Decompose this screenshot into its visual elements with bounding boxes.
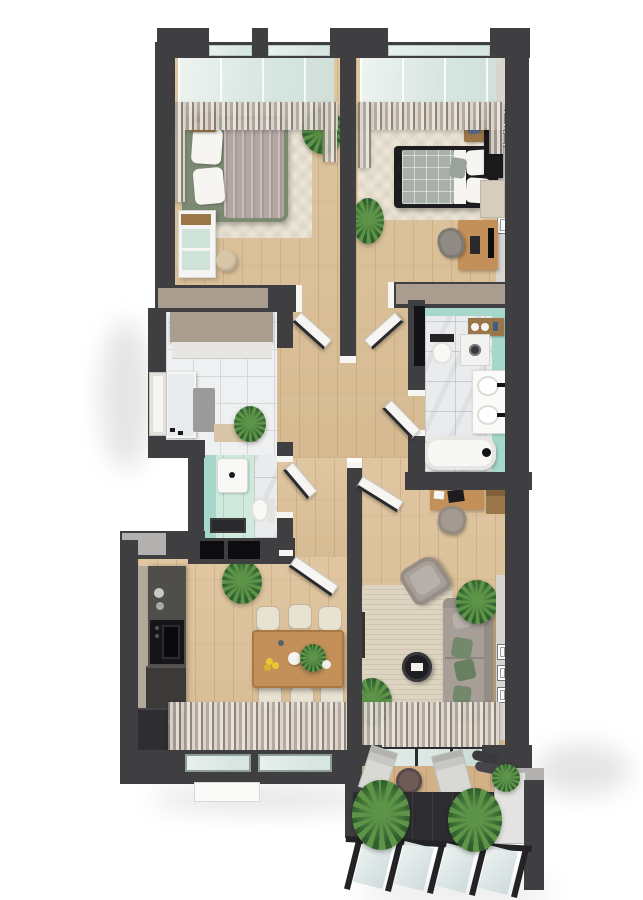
window-recess <box>360 58 503 106</box>
entry-wardrobe-front <box>172 342 272 359</box>
washing-machine <box>460 334 490 366</box>
curtain <box>362 702 500 750</box>
shoes <box>170 428 175 432</box>
toilet-tank <box>430 334 454 342</box>
towel-roll <box>481 323 489 331</box>
blanket <box>224 120 284 218</box>
plant <box>456 580 498 624</box>
cups <box>278 640 284 646</box>
toilet <box>430 334 454 364</box>
wall-entry-stub <box>277 308 293 348</box>
cooktop-oven <box>150 620 184 664</box>
bottle <box>493 322 498 331</box>
curtain-side <box>489 102 503 154</box>
plate <box>322 660 331 669</box>
basin <box>477 405 499 425</box>
door-jamb <box>388 282 394 308</box>
wall-end-cap <box>340 356 356 363</box>
curtain <box>168 702 348 754</box>
door-jamb <box>408 390 425 396</box>
oven-knobs <box>155 634 159 638</box>
bathtub <box>424 436 496 470</box>
window-glass <box>258 754 332 772</box>
accent-pillow <box>448 157 467 179</box>
pillow <box>191 127 223 165</box>
window-glass <box>185 754 251 772</box>
pillow-green <box>453 658 477 682</box>
lemons <box>264 664 271 671</box>
door-jamb <box>277 512 293 518</box>
wall-top-taupe <box>158 288 268 308</box>
dresser-drawer <box>182 251 210 270</box>
curtain-side <box>323 102 337 162</box>
washbasin <box>217 458 248 493</box>
faucet <box>497 413 505 417</box>
coffee-machine <box>156 602 164 610</box>
door-jamb <box>296 285 302 312</box>
oven-door <box>162 625 180 659</box>
curtain-side <box>358 102 371 168</box>
dresser-shelf <box>181 214 211 225</box>
vanity-double-sink <box>472 370 507 434</box>
plant <box>352 198 384 244</box>
shadow <box>534 744 630 796</box>
plant <box>234 406 266 442</box>
wall-end-cap <box>347 462 362 468</box>
curtain <box>358 102 504 130</box>
balcony-plant <box>448 788 502 852</box>
entry-wardrobe <box>170 312 273 342</box>
shower-mat <box>210 518 246 533</box>
washer-drum <box>469 344 481 356</box>
faucet <box>497 383 505 387</box>
storage-box <box>228 541 260 559</box>
wall-balcony-right <box>524 780 544 890</box>
bath-niche <box>414 306 425 366</box>
dining-table <box>252 630 344 688</box>
basin <box>477 376 499 396</box>
balcony-plant <box>352 780 410 850</box>
kitchen-counter <box>148 566 186 712</box>
notebook <box>411 663 423 671</box>
wall-right <box>505 42 529 748</box>
coffee-table <box>402 652 432 682</box>
dining-chair <box>288 604 312 632</box>
plant <box>222 560 262 604</box>
window-glass <box>268 45 330 56</box>
window-glass <box>209 45 252 56</box>
wall-bedroom-divider <box>340 58 356 363</box>
paper <box>434 490 445 499</box>
storage-box <box>200 541 224 559</box>
shoes <box>178 431 183 435</box>
oven-knobs <box>155 626 159 630</box>
window-recess <box>178 58 334 106</box>
towel-roll <box>471 323 479 331</box>
door-jamb <box>279 550 293 556</box>
front-door <box>149 372 167 436</box>
table-plant <box>300 644 326 672</box>
pouf <box>216 250 238 272</box>
laptop <box>447 489 465 503</box>
dresser-drawer <box>182 229 210 248</box>
keyboard <box>470 236 480 254</box>
wall-bath-left-lower <box>408 436 425 476</box>
cabinet-cream <box>480 180 505 218</box>
wall-left-upper <box>155 42 175 312</box>
floor-plan-render <box>0 0 643 900</box>
wall-pier <box>330 28 388 44</box>
armchair-cushion <box>408 563 443 597</box>
monitor <box>488 228 494 258</box>
faucet <box>229 472 235 478</box>
coffee-machine <box>154 588 164 598</box>
door-jamb <box>277 456 293 462</box>
dresser <box>178 210 216 278</box>
tub-faucet <box>482 448 491 457</box>
wall-living-divider <box>347 462 362 772</box>
window-bay <box>194 782 260 802</box>
toilet-bowl <box>432 342 452 364</box>
toilet <box>251 496 275 524</box>
gray-rug <box>193 388 215 432</box>
shadow <box>100 320 152 470</box>
lemons <box>272 662 279 669</box>
curtain <box>170 102 338 130</box>
pillow-green <box>450 636 473 659</box>
wall-pier <box>252 28 268 44</box>
blanket <box>402 150 454 204</box>
window-glass <box>388 45 490 56</box>
pillow <box>192 167 225 205</box>
balcony-plant <box>492 764 520 792</box>
wall-kitchen-left <box>120 540 138 784</box>
